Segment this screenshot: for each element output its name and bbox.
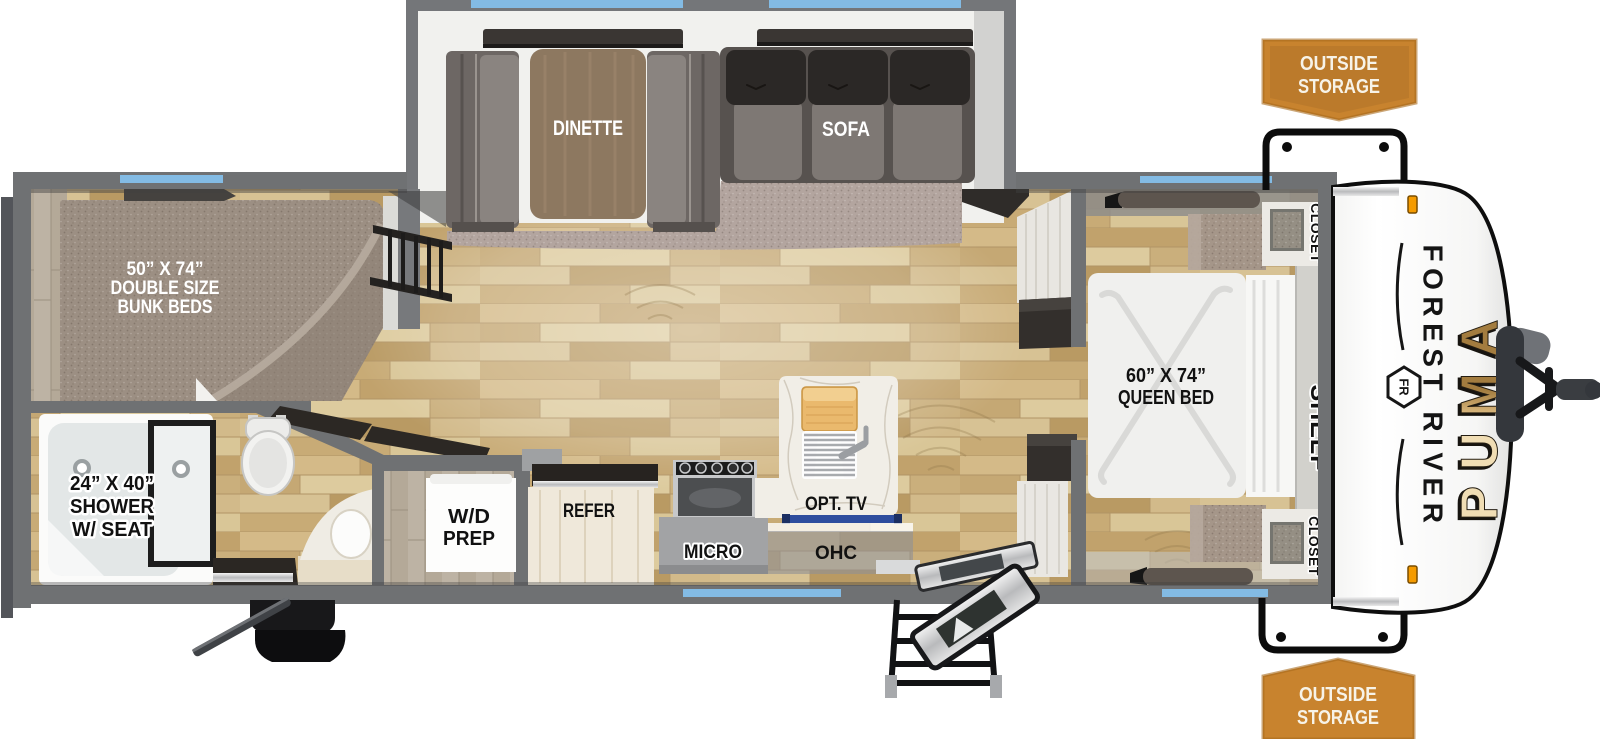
svg-text:STORAGE: STORAGE (1298, 76, 1380, 98)
svg-text:STORAGE: STORAGE (1297, 707, 1379, 729)
svg-text:FOREST RIVER: FOREST RIVER (1418, 245, 1449, 530)
svg-text:MICRO: MICRO (684, 542, 742, 563)
svg-text:W/D: W/D (448, 506, 490, 528)
svg-text:DOUBLE SIZE: DOUBLE SIZE (111, 278, 220, 299)
svg-text:OPT. TV: OPT. TV (805, 494, 867, 515)
svg-text:PREP: PREP (443, 528, 495, 550)
svg-text:DINETTE: DINETTE (553, 117, 623, 140)
svg-text:QUEEN BED: QUEEN BED (1118, 387, 1214, 409)
svg-text:60” X 74”: 60” X 74” (1126, 365, 1206, 387)
svg-text:OUTSIDE: OUTSIDE (1300, 53, 1378, 75)
svg-text:SOFA: SOFA (822, 118, 870, 141)
svg-text:BUNK BEDS: BUNK BEDS (118, 297, 213, 318)
svg-text:SHOWER: SHOWER (70, 496, 155, 518)
svg-text:OHC: OHC (815, 543, 857, 564)
svg-text:50” X 74”: 50” X 74” (127, 259, 204, 280)
svg-text:OUTSIDE: OUTSIDE (1299, 684, 1377, 706)
svg-text:FR: FR (1397, 378, 1412, 396)
svg-text:24” X 40”: 24” X 40” (70, 473, 154, 495)
svg-text:REFER: REFER (563, 501, 615, 522)
svg-text:W/ SEAT: W/ SEAT (72, 519, 152, 541)
